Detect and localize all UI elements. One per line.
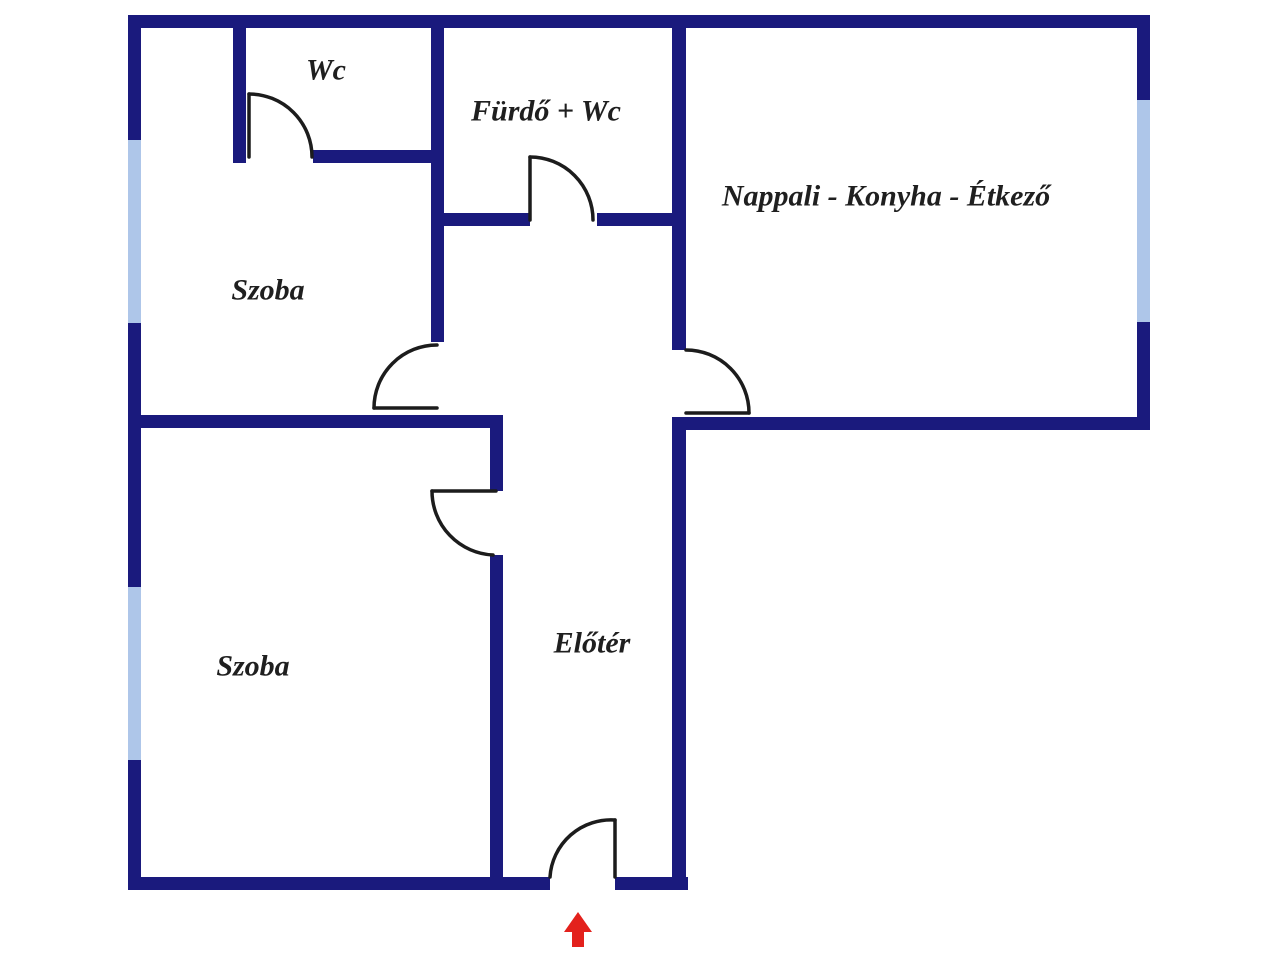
door-swing-arc <box>432 491 493 555</box>
door-swing-arc <box>530 157 593 220</box>
door-szoba-lower <box>432 491 496 555</box>
door-furdo <box>530 157 593 220</box>
wall-furdo-nappali-divider <box>672 15 686 350</box>
wall-eloter-left-lower <box>490 555 503 890</box>
window-right <box>1137 100 1150 322</box>
window-left-lower <box>128 587 141 760</box>
door-swing-arc <box>686 350 749 413</box>
wall-wc-bottom <box>313 150 444 163</box>
walls <box>128 15 1150 890</box>
room-label-furdo-wc: Fürdő + Wc <box>471 95 621 128</box>
door-swing-arc <box>249 94 312 157</box>
wall-wc-left <box>233 15 246 163</box>
wall-eloter-right <box>672 417 686 890</box>
door-swing-arc <box>550 820 615 877</box>
door-swing-arc <box>374 345 437 408</box>
wall-furdo-bottom-left <box>431 213 530 226</box>
door-szoba-upper <box>374 345 437 408</box>
room-label-wc: Wc <box>306 54 346 87</box>
wall-top <box>128 15 1150 28</box>
wall-mid-horizontal <box>128 415 503 428</box>
room-label-nappali: Nappali - Konyha - Étkező <box>722 180 1050 213</box>
door-wc <box>249 94 312 157</box>
room-label-szoba-lower: Szoba <box>216 650 289 683</box>
room-label-szoba-upper: Szoba <box>231 274 304 307</box>
wall-eloter-left-upper <box>490 415 503 491</box>
floor-plan-drawing <box>0 0 1280 960</box>
room-label-eloter: Előtér <box>554 627 631 660</box>
entrance-arrow-icon <box>564 912 592 947</box>
floor-plan: Wc Fürdő + Wc Nappali - Konyha - Étkező … <box>0 0 1280 960</box>
wall-szoba-hall-divider <box>431 15 444 342</box>
door-entrance <box>550 820 615 877</box>
wall-nappali-bottom <box>672 417 1150 430</box>
window-left-upper <box>128 140 141 323</box>
door-nappali <box>686 350 749 413</box>
wall-bottom-left-segment <box>128 877 550 890</box>
